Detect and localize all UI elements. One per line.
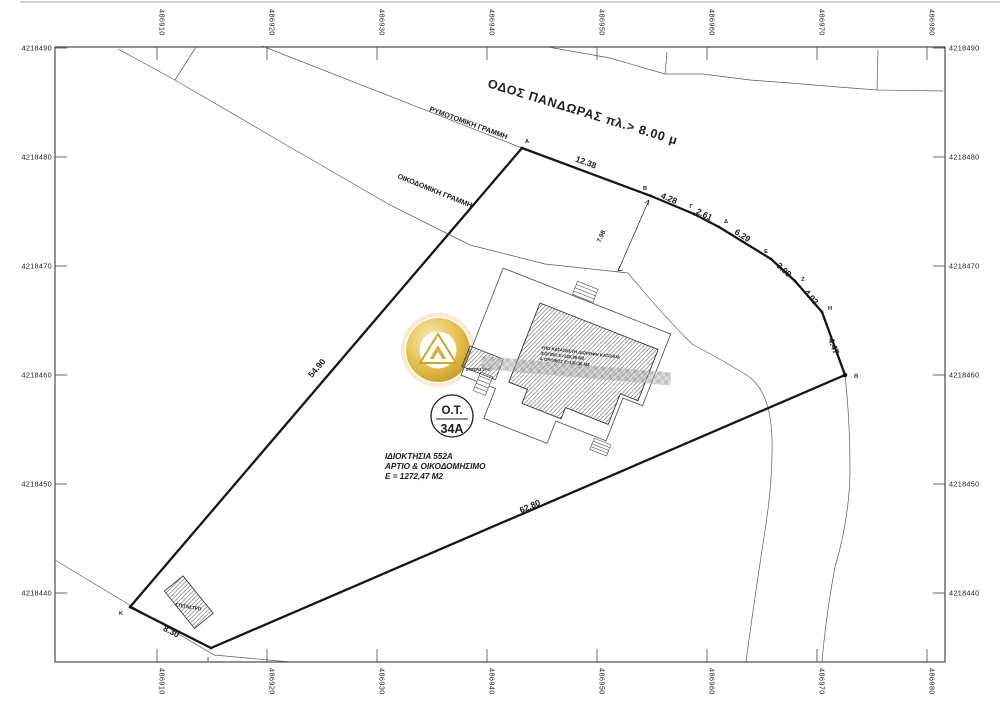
- vertex-E: E: [764, 249, 768, 255]
- northing-label-left: 4218460: [21, 371, 52, 380]
- easting-label-bottom: 486950: [598, 668, 607, 695]
- property-line1: ΙΔΙΟΚΤΗΣΙΑ 552Α: [385, 452, 453, 461]
- easting-label-bottom: 486980: [928, 668, 937, 695]
- easting-label-top: 486920: [268, 9, 277, 36]
- easting-label-top: 486930: [378, 9, 387, 36]
- easting-label-top: 486950: [598, 9, 607, 36]
- northing-label-right: 4218440: [949, 589, 980, 598]
- property-line3: Ε = 1272,47 Μ2: [385, 472, 443, 481]
- block-badge: O.T. 34A: [431, 395, 473, 437]
- vertex-A: A: [525, 139, 529, 145]
- northing-label-right: 4218470: [949, 262, 980, 271]
- block-badge-number: 34A: [441, 422, 464, 436]
- vertex-TH: Θ: [854, 374, 859, 380]
- northing-label-left: 4218470: [21, 262, 52, 271]
- easting-label-top: 486910: [158, 9, 167, 36]
- northing-label-left: 4218480: [21, 153, 52, 162]
- northing-label-left: 4218440: [21, 589, 52, 598]
- northing-label-left: 4218490: [21, 44, 52, 53]
- property-line2: ΑΡΤΙΟ & ΟΙΚΟΔΟΜΗΣΙΜΟ: [384, 462, 486, 471]
- vertex-Z: Z: [801, 277, 805, 283]
- easting-label-top: 486940: [488, 9, 497, 36]
- easting-label-bottom: 486910: [158, 668, 167, 695]
- northing-label-right: 4218450: [949, 480, 980, 489]
- easting-label-bottom: 486970: [818, 668, 827, 695]
- block-badge-prefix: O.T.: [441, 405, 462, 417]
- survey-drawing-canvas: 4869104869104869204869204869304869304869…: [0, 0, 1000, 706]
- easting-label-bottom: 486960: [708, 668, 717, 695]
- northing-label-right: 4218480: [949, 153, 980, 162]
- northing-label-left: 4218450: [21, 480, 52, 489]
- vertex-K: K: [119, 611, 123, 617]
- easting-label-bottom: 486930: [378, 668, 387, 695]
- easting-label-bottom: 486920: [268, 668, 277, 695]
- northing-label-right: 4218490: [949, 44, 980, 53]
- northing-label-right: 4218460: [949, 371, 980, 380]
- survey-drawing-page: 4869104869104869204869204869304869304869…: [0, 0, 1000, 706]
- vertex-H: H: [828, 306, 832, 312]
- easting-label-top: 486970: [818, 9, 827, 36]
- easting-label-top: 486980: [928, 9, 937, 36]
- easting-label-top: 486960: [708, 9, 717, 36]
- vertex-B: B: [643, 186, 647, 192]
- vertex-D: Δ: [724, 219, 728, 225]
- easting-label-bottom: 486940: [488, 668, 497, 695]
